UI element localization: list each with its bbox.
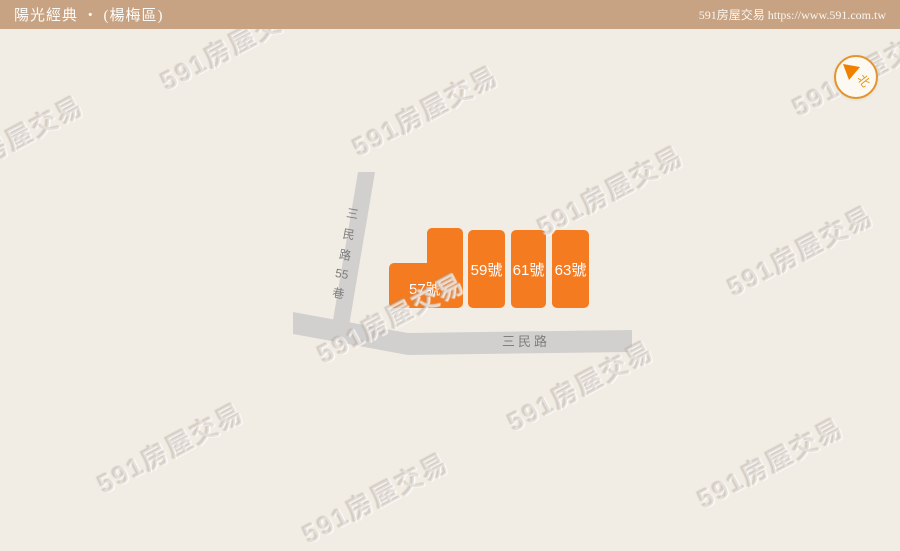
lane-char: 巷 bbox=[331, 284, 346, 303]
building-57-label: 57號 bbox=[409, 278, 441, 299]
lane-char: 55 bbox=[334, 266, 350, 282]
lane-char: 三 bbox=[345, 204, 360, 223]
lane-char: 路 bbox=[338, 245, 353, 264]
header-bar: 陽光經典 ‧ (楊梅區) 591房屋交易 https://www.591.com… bbox=[0, 0, 900, 29]
site-watermark-text: 591房屋交易 https://www.591.com.tw bbox=[699, 6, 886, 23]
building-61-label: 61號 bbox=[513, 259, 545, 280]
building-63-label: 63號 bbox=[555, 259, 587, 280]
building-57[interactable]: 57號 bbox=[389, 228, 463, 308]
lane-char: 民 bbox=[341, 225, 356, 244]
building-59-label: 59號 bbox=[471, 259, 503, 280]
building-59[interactable]: 59號 bbox=[468, 230, 505, 308]
street-map: 三 民 路 55 巷 三民路 57號 59號 61號 63號 591房屋交易 5… bbox=[0, 29, 900, 510]
building-63[interactable]: 63號 bbox=[552, 230, 589, 308]
main-road-label: 三民路 bbox=[494, 331, 558, 350]
community-title: 陽光經典 ‧ (楊梅區) bbox=[14, 4, 164, 25]
building-61[interactable]: 61號 bbox=[511, 230, 546, 308]
compass: 北 bbox=[834, 55, 878, 99]
